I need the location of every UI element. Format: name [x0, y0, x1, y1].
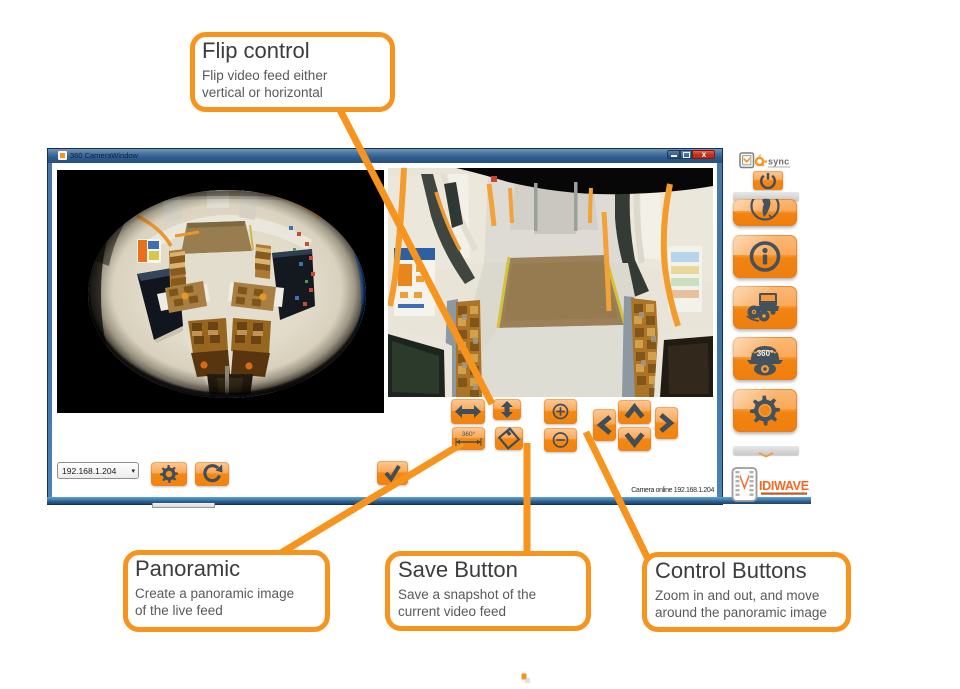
svg-text:360°: 360° [757, 349, 774, 358]
svg-text:360°: 360° [462, 430, 476, 438]
